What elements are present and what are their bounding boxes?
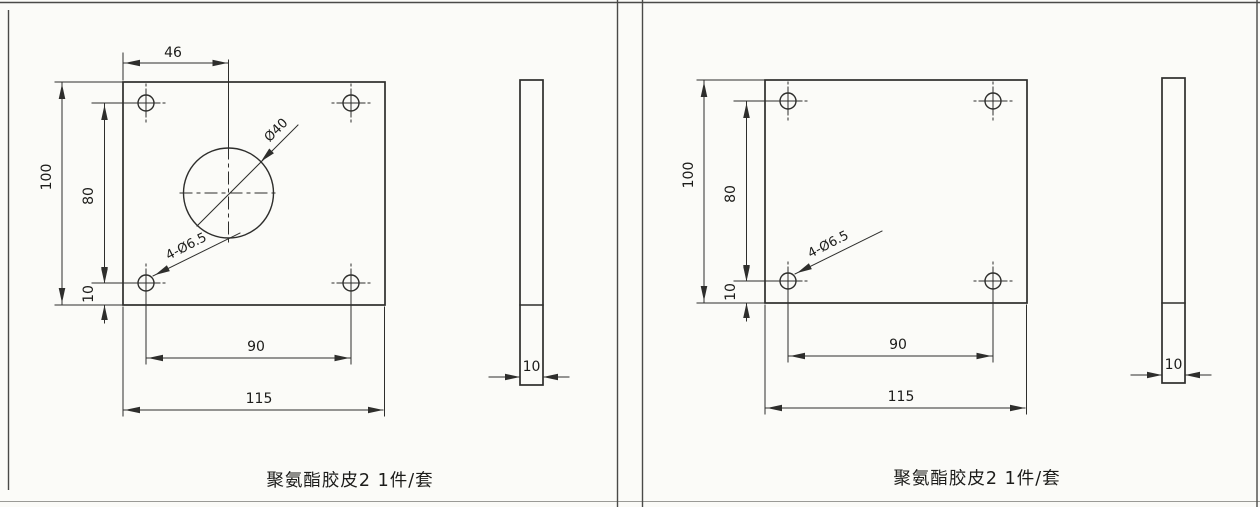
- dim-label: 46: [164, 45, 182, 61]
- arrowhead: [101, 305, 108, 320]
- hole-marker: [127, 84, 165, 122]
- arrowhead: [1147, 372, 1162, 379]
- arrowhead: [101, 269, 108, 284]
- caption-text: 聚氨酯胶皮2 1件/套: [266, 471, 433, 491]
- dim-label: 10: [723, 283, 739, 301]
- left-panel: Ø40 46 100 80 10: [39, 45, 569, 491]
- arrowhead: [59, 84, 66, 99]
- arrowhead: [368, 407, 383, 414]
- arrowhead: [59, 288, 66, 303]
- dim-label: 100: [681, 162, 697, 189]
- arrowhead: [101, 105, 108, 120]
- hole-marker: [332, 84, 370, 122]
- dim-plate-height: 100: [39, 83, 65, 304]
- dim-hole-span-horizontal: 90: [146, 291, 351, 364]
- arrowhead: [796, 263, 812, 276]
- dim-corner-holes: 4-Ø6.5: [795, 228, 882, 276]
- dim-plate-width: 115: [765, 305, 1027, 414]
- arrowhead: [125, 407, 140, 414]
- dim-plate-height: 100: [681, 81, 707, 302]
- arrowhead: [125, 60, 140, 67]
- arrowhead: [148, 355, 163, 362]
- dim-center-hole: Ø40: [197, 116, 298, 226]
- arrowhead: [977, 353, 992, 360]
- arrowhead: [743, 267, 750, 282]
- arrowhead: [213, 60, 228, 67]
- dim-hole-span-vertical: 80: [723, 102, 750, 280]
- arrowhead: [743, 303, 750, 318]
- side-view-outline: [520, 80, 543, 385]
- dim-hole-bottom-offset: 10: [723, 267, 750, 322]
- caption-text: 聚氨酯胶皮2 1件/套: [893, 469, 1060, 489]
- dim-label: 90: [889, 337, 907, 353]
- dim-label-thickness: 10: [523, 359, 541, 375]
- blueprint-page: Ø40 46 100 80 10: [0, 0, 1260, 507]
- dim-hole-bottom-offset: 10: [81, 269, 108, 324]
- hole-marker: [769, 82, 807, 120]
- dim-label: 100: [39, 164, 55, 191]
- dim-label: 115: [246, 391, 273, 407]
- side-view: 10: [1131, 78, 1211, 383]
- dim-label-corner-holes: 4-Ø6.5: [163, 230, 209, 263]
- arrowhead: [154, 265, 170, 278]
- right-panel: 100 80 10 4-Ø6.5 90: [681, 78, 1211, 489]
- dim-label: 80: [723, 185, 739, 203]
- dim-hole-span-vertical: 80: [81, 104, 108, 282]
- arrowhead: [335, 355, 350, 362]
- dim-label-center-hole: Ø40: [262, 116, 292, 146]
- dim-label: 115: [888, 389, 915, 405]
- arrowhead: [1185, 372, 1200, 379]
- arrowhead: [1010, 405, 1025, 412]
- arrowhead: [790, 353, 805, 360]
- dim-label: 90: [247, 339, 265, 355]
- dim-hole-span-horizontal: 90: [788, 289, 993, 362]
- arrowhead: [543, 374, 558, 381]
- arrowhead: [767, 405, 782, 412]
- engineering-drawing: Ø40 46 100 80 10: [0, 0, 1260, 507]
- arrowhead: [505, 374, 520, 381]
- dim-label: 80: [81, 187, 97, 205]
- arrowhead: [701, 286, 708, 301]
- dim-label: 10: [81, 285, 97, 303]
- dim-label-thickness: 10: [1165, 357, 1183, 373]
- leader-line: [197, 125, 298, 226]
- dim-plate-width: 115: [123, 307, 385, 416]
- side-view-outline: [1162, 78, 1185, 383]
- hole-marker: [974, 82, 1012, 120]
- dim-hole-x-offset: 46: [123, 45, 228, 80]
- dim-label-corner-holes: 4-Ø6.5: [805, 228, 851, 261]
- arrowhead: [701, 82, 708, 97]
- arrowhead: [743, 103, 750, 118]
- side-view: 10: [489, 80, 569, 385]
